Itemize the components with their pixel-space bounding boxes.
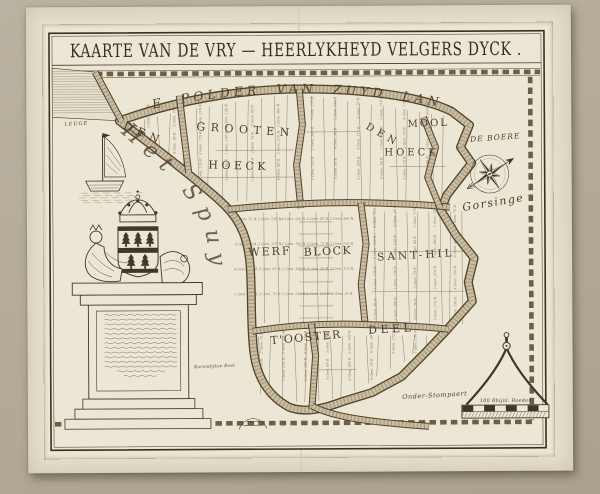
parcel-note: 6 Gem. 50 R. <box>380 156 384 178</box>
parcel-note: 4 Gem. 120 R. <box>311 156 315 182</box>
parcel-note: 2 Gem. 300 R. <box>281 267 307 271</box>
parcel-note: 3 Gem. 175 R. <box>330 267 355 271</box>
heraldic-monument <box>64 189 211 429</box>
parcel-note: 2 Gem. 75 R. <box>402 126 406 149</box>
parcel-note: 1 Gem. 150 R. <box>333 96 337 121</box>
map-engraving: KAARTE VAN DE VRY — HEERLYKHEYD VELGERS … <box>0 0 600 494</box>
parcel-note: 5 Gem. 95 R. <box>326 358 330 380</box>
parcel-note: 3 Gem. 175 R. <box>310 96 314 121</box>
map-label-onder-stompaert: Onder-Stompaert <box>402 389 467 401</box>
map-label-den-grooten-3: HOECK <box>208 158 269 173</box>
parcel-note: 2 Gem. 75 R. <box>259 331 263 354</box>
lion-figure <box>160 251 190 282</box>
parcel-note: 1 Gem. 150 R. <box>393 265 397 290</box>
parcel-note: 6 Gem. 50 R. <box>307 267 329 271</box>
parcel-note: 5 Gem. 95 R. <box>307 217 329 221</box>
parcel-note: 6 Gem. 50 R. <box>393 204 397 226</box>
scale-bar <box>461 405 549 418</box>
parcel-note: 3 Gem. 175 R. <box>403 155 407 180</box>
map-label-den-grooten-2: GROOTEN <box>196 120 295 139</box>
parcel-note: 2 Gem. 300 R. <box>329 217 355 221</box>
map-label-block: BLOCK <box>303 244 352 259</box>
map-label-den-mool-2: MOOL <box>407 118 449 131</box>
map-label-ooster-2: DEEL <box>368 321 415 337</box>
parcel-note: 6 Gem. 50 R. <box>370 357 374 379</box>
parcel-note: 5 Gem. 95 R. <box>331 292 353 296</box>
map-label-boet: Korendijkse Boet <box>193 363 235 370</box>
map-label-scale-label: 100 Rhijnl. Roeden <box>480 398 532 404</box>
paper-sheet: KAARTE VAN DE VRY — HEERLYKHEYD VELGERS … <box>26 5 573 474</box>
parcel-note: 6 Gem. 50 R. <box>172 131 176 153</box>
map-label-werf: WERF <box>248 244 292 259</box>
coat-of-arms-shield <box>118 227 158 277</box>
parcel-note: 2 Gem. 75 R. <box>413 266 417 289</box>
map-label-leuge: LEUGE <box>63 121 88 128</box>
parcel-note: 3 Gem. 175 R. <box>373 265 377 290</box>
parcel-note: 2 Gem. 75 R. <box>356 97 360 120</box>
parcel-note: 2 Gem. 300 R. <box>357 155 361 181</box>
parcel-note: 6 Gem. 50 R. <box>277 158 281 180</box>
inventory-mark: RP-P-AO-14-60 <box>44 478 83 483</box>
parcel-note: 3 Gem. 175 R. <box>198 130 202 155</box>
photographed-map-sheet: KAARTE VAN DE VRY — HEERLYKHEYD VELGERS … <box>0 0 600 494</box>
map-title: KAARTE VAN DE VRY — HEERLYKHEYD VELGERS … <box>70 39 522 62</box>
parcel-note: 3 Gem. 210 R. <box>258 217 283 221</box>
parcel-note: 2 Gem. 300 R. <box>348 356 352 382</box>
parcel-note: 5 Gem. 95 R. <box>334 157 338 179</box>
divider-compass-icon <box>466 332 546 404</box>
parcel-note: 4 Gem. 120 R. <box>453 265 457 291</box>
parcel-note: 3 Gem. 210 R. <box>282 292 307 296</box>
parcel-note: 5 Gem. 95 R. <box>373 297 377 319</box>
crown-icon <box>118 190 157 222</box>
parcel-note: 3 Gem. 175 R. <box>433 296 437 321</box>
parcel-note: 4 Gem. 120 R. <box>305 292 331 296</box>
parcel-note: 2 Gem. 300 R. <box>393 296 397 322</box>
map-label-den-mool-3: HOECK <box>384 147 438 158</box>
map-label-sant-hil: SANT-HIL <box>377 247 455 263</box>
map-label-gorsinge: Gorsinge <box>461 191 525 214</box>
parcel-note: 4 Gem. 120 R. <box>281 217 307 221</box>
parcel-note: 2 Gem. 300 R. <box>347 329 351 355</box>
parcel-note: 2 Gem. 75 R. <box>258 292 281 296</box>
parcel-note: 6 Gem. 50 R. <box>413 297 417 319</box>
water-ripples <box>79 193 145 203</box>
parcel-note: 6 Gem. 50 R. <box>333 127 337 149</box>
parcel-note: 5 Gem. 95 R. <box>259 267 281 271</box>
parcel-note: 3 Gem. 210 R. <box>282 357 286 382</box>
sailboat-icon <box>85 133 125 191</box>
parcel-note: 3 Gem. 210 R. <box>433 265 437 290</box>
parcel-note: 4 Gem. 120 R. <box>304 357 308 383</box>
map-label-de-boere: DE BOERE <box>469 131 521 144</box>
parcel-note: 2 Gem. 300 R. <box>373 203 377 229</box>
parcel-note: 3 Gem. 175 R. <box>356 125 360 150</box>
parcel-note: 2 Gem. 300 R. <box>310 126 314 152</box>
